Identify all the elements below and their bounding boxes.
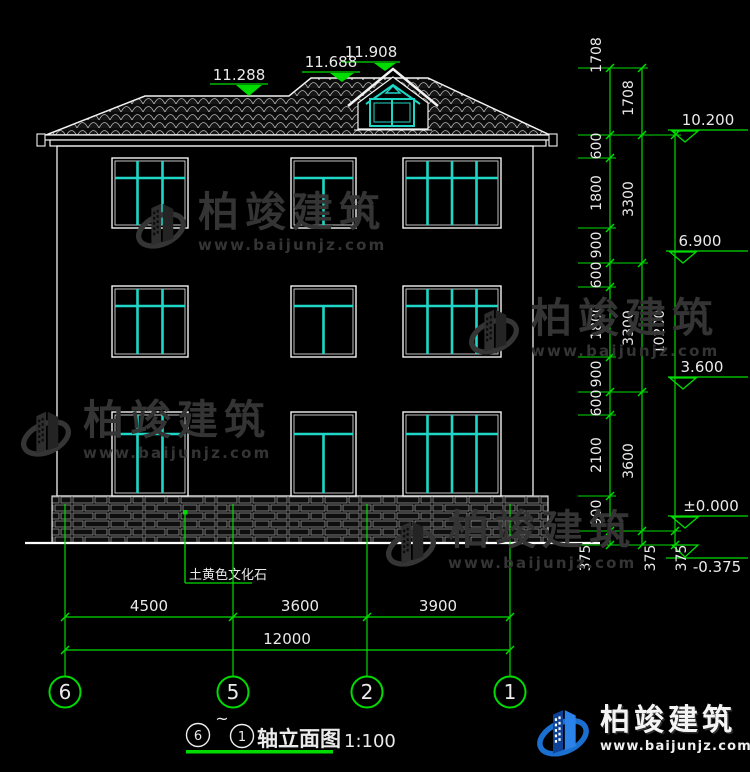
axis-bubble-5: 5 xyxy=(227,680,240,704)
roof-tiles xyxy=(46,78,550,135)
dim-span-2: 3600 xyxy=(281,597,319,615)
axis-bubble-2: 2 xyxy=(361,680,374,704)
stone-plinth xyxy=(52,496,548,543)
dormer-window xyxy=(370,99,414,126)
brand-logo-icon xyxy=(534,697,592,763)
window-f1-left xyxy=(112,412,188,496)
dim-span-3: 3900 xyxy=(419,597,457,615)
title-name: 轴立面图 xyxy=(257,727,341,751)
dim-label: 600 xyxy=(589,390,605,417)
dim-label: 10200 xyxy=(652,310,668,355)
dim-label: 375 xyxy=(578,545,594,572)
dim-label: 3300 xyxy=(621,181,637,217)
drawing-title: 6 ~ 1 轴立面图 1:100 xyxy=(186,709,396,754)
window-f2-right xyxy=(403,286,501,357)
title-axis-start: 6 xyxy=(194,729,202,744)
dim-label: 1800 xyxy=(589,304,605,340)
window-f3-middle xyxy=(291,158,356,228)
title-axis-end: 1 xyxy=(238,730,246,745)
dim-label: 1800 xyxy=(589,175,605,211)
dim-label: 3300 xyxy=(621,310,637,346)
level-ridge-low: 11.288 xyxy=(213,66,266,84)
axis-bubbles: 6 5 2 1 xyxy=(50,677,526,708)
level-site: -0.375 xyxy=(693,558,741,576)
footer-logo: 柏竣建筑 www.baijunjz.com xyxy=(534,697,750,763)
dim-total: 12000 xyxy=(263,630,311,648)
dim-label: 375 xyxy=(643,545,659,572)
axis-bubble-6: 6 xyxy=(59,680,72,704)
elevation-drawing: 土黄色文化石 11.288 11.688 11.908 10.200 6.900… xyxy=(0,0,750,772)
dim-label: 600 xyxy=(589,133,605,160)
dim-label: 3600 xyxy=(621,443,637,479)
footer-url: www.baijunjz.com xyxy=(600,739,750,754)
level-zero: ±0.000 xyxy=(683,497,739,515)
window-f1-middle xyxy=(291,412,356,496)
title-tilde: ~ xyxy=(215,709,228,728)
eave-fascia-upper xyxy=(44,135,550,140)
dim-label: 900 xyxy=(589,500,605,527)
level-eave: 10.200 xyxy=(682,111,735,129)
window-f3-left xyxy=(112,158,188,228)
level-floor2: 3.600 xyxy=(681,358,724,376)
plinth-note-label: 土黄色文化石 xyxy=(189,567,267,583)
footer-brand: 柏竣建筑 xyxy=(600,706,750,736)
dim-label: 1708 xyxy=(621,80,637,116)
dim-label: 900 xyxy=(589,232,605,259)
dim-label: 600 xyxy=(589,262,605,289)
window-f3-right xyxy=(403,158,501,228)
level-ridge-high: 11.908 xyxy=(345,43,398,61)
window-f2-middle xyxy=(291,286,356,357)
eave-fascia-lower xyxy=(50,140,546,146)
axis-bubble-1: 1 xyxy=(504,680,517,704)
dim-label: 900 xyxy=(589,361,605,388)
title-scale: 1:100 xyxy=(344,731,396,752)
dim-label: 375 xyxy=(674,545,690,572)
dim-label: 2100 xyxy=(589,437,605,473)
window-f2-left xyxy=(112,286,188,357)
window-f1-right xyxy=(403,412,501,496)
level-floor3: 6.900 xyxy=(679,232,722,250)
dim-label: 1708 xyxy=(589,37,605,73)
title-underline xyxy=(186,750,333,754)
vertical-dimension-chains: 1708 600 1800 900 600 1800 900 600 2100 … xyxy=(578,37,690,571)
roof xyxy=(37,78,557,146)
dim-span-1: 4500 xyxy=(130,597,168,615)
right-level-markers: 10.200 6.900 3.600 ±0.000 -0.375 xyxy=(666,111,748,576)
